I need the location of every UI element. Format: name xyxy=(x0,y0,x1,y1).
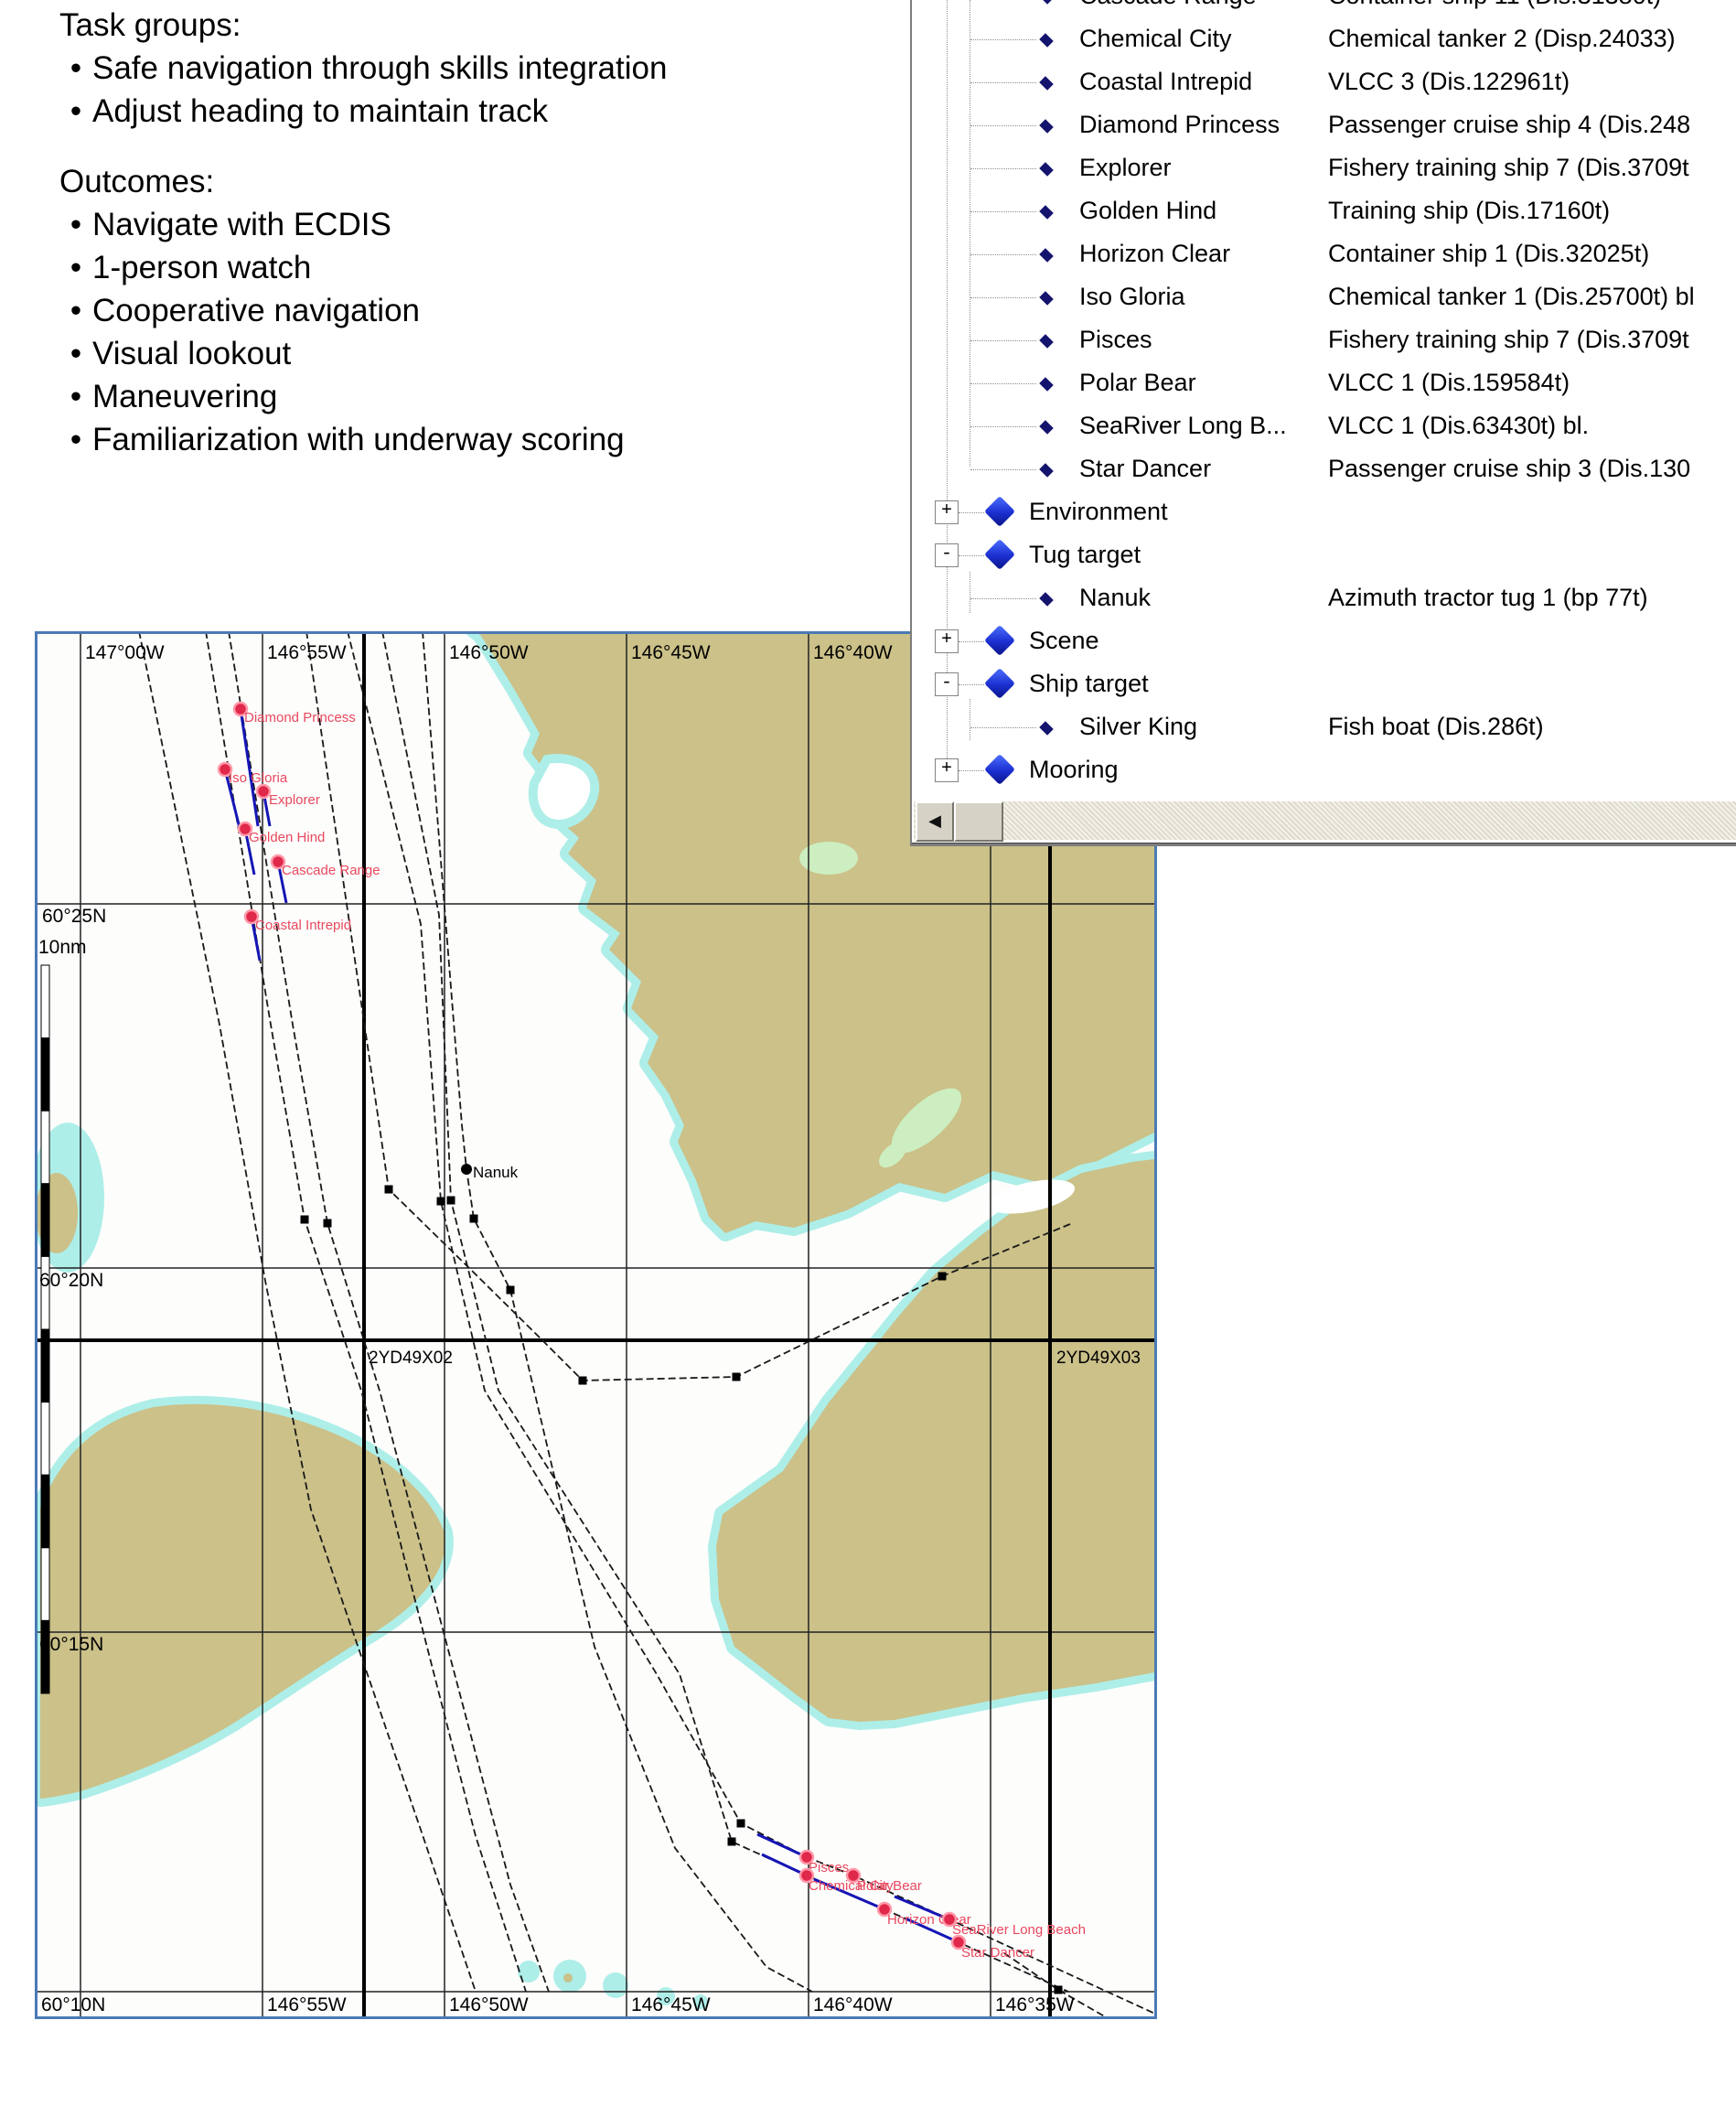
item-bullet-icon xyxy=(1039,420,1054,435)
tree-row-mooring[interactable]: +Mooring xyxy=(912,749,1736,792)
ship-name: SeaRiver Long B... xyxy=(1079,412,1287,440)
waypoint-square[interactable] xyxy=(385,1186,393,1194)
item-bullet-icon xyxy=(1039,119,1054,134)
coordinate-label: 146°50W xyxy=(449,642,529,663)
bullet-dot: • xyxy=(59,47,92,90)
ship-description: Container ship 1 (Dis.32025t) xyxy=(1328,240,1649,268)
coordinate-label: 146°35W xyxy=(995,1994,1075,2015)
coordinate-label: 60°20N xyxy=(39,1270,103,1291)
item-bullet-icon xyxy=(1039,76,1054,91)
waypoint-square[interactable] xyxy=(301,1216,309,1224)
tree-connector-stub xyxy=(959,641,984,642)
slide-canvas: Task groups: •Safe navigation through sk… xyxy=(0,0,1736,2117)
scenario-tree: Cascade RangeContainer ship 11 (Dis.3138… xyxy=(912,0,1736,792)
ship-label-pisces: Pisces xyxy=(809,1860,849,1875)
tree-connector-stub xyxy=(970,598,1036,599)
tree-row-star-dancer[interactable]: Star DancerPassenger cruise ship 3 (Dis.… xyxy=(912,448,1736,491)
bullet-text: 1-person watch xyxy=(92,250,311,285)
ship-name: Cascade Range xyxy=(1079,0,1257,10)
ship-name: Polar Bear xyxy=(1079,369,1196,397)
waypoint-square[interactable] xyxy=(733,1373,741,1381)
bullet-text: Cooperative navigation xyxy=(92,293,420,328)
bullet-dot: • xyxy=(59,375,92,418)
scale-bar-segment xyxy=(41,1256,49,1329)
ship-name: Pisces xyxy=(1079,326,1152,354)
ship-name: Horizon Clear xyxy=(1079,240,1230,268)
scrollbar-thumb[interactable] xyxy=(954,801,1003,842)
tree-connector-stub xyxy=(970,254,1036,255)
ship-marker-explorer[interactable] xyxy=(257,785,270,798)
bullet-item: •Familiarization with underway scoring xyxy=(59,418,901,461)
bullet-text: Navigate with ECDIS xyxy=(92,207,391,242)
coordinate-label: 146°45W xyxy=(631,1994,711,2015)
coordinate-label: 146°40W xyxy=(813,1994,893,2015)
item-bullet-icon xyxy=(1039,592,1054,607)
tug-marker-nanuk[interactable] xyxy=(461,1164,472,1175)
tree-row-explorer[interactable]: ExplorerFishery training ship 7 (Dis.370… xyxy=(912,147,1736,190)
tree-connector-stub xyxy=(970,82,1036,83)
item-bullet-icon xyxy=(1039,162,1054,177)
tree-connector-stub xyxy=(959,684,984,685)
waypoint-square[interactable] xyxy=(447,1197,455,1205)
ship-description: Fishery training ship 7 (Dis.3709t xyxy=(1328,326,1689,354)
shoal-patch xyxy=(603,1972,628,1998)
tree-row-ship-target[interactable]: -Ship target xyxy=(912,663,1736,706)
ship-description: Fish boat (Dis.286t) xyxy=(1328,713,1544,741)
bullet-dot: • xyxy=(59,203,92,246)
item-bullet-icon xyxy=(1039,377,1054,392)
expand-toggle[interactable]: + xyxy=(935,758,959,782)
ship-description: Chemical tanker 1 (Dis.25700t) bl xyxy=(1328,283,1695,311)
ship-name: Star Dancer xyxy=(1079,455,1211,483)
tree-connector-stub xyxy=(970,39,1036,40)
scale-bar-segment xyxy=(41,1184,49,1257)
ship-description: Fishery training ship 7 (Dis.3709t xyxy=(1328,154,1689,182)
coordinate-label: 146°40W xyxy=(813,642,893,663)
tree-connector-stub xyxy=(970,383,1036,384)
category-label: Scene xyxy=(1029,627,1099,655)
shoal-islet xyxy=(563,1973,573,1983)
waypoint-square[interactable] xyxy=(728,1838,736,1846)
coordinate-label: 146°45W xyxy=(631,642,711,663)
scale-bar-segment xyxy=(41,1548,49,1621)
bullet-dot: • xyxy=(59,418,92,461)
ship-description: Chemical tanker 2 (Disp.24033) xyxy=(1328,25,1676,53)
tree-row-nanuk[interactable]: NanukAzimuth tractor tug 1 (bp 77t) xyxy=(912,577,1736,620)
bullet-item: •Adjust heading to maintain track xyxy=(59,90,901,133)
scale-bar-segment xyxy=(41,1329,49,1402)
item-bullet-icon xyxy=(1039,248,1054,263)
tree-connector-stub xyxy=(959,770,984,771)
ship-label-cascade-range: Cascade Range xyxy=(282,863,380,878)
tree-row-tug-target[interactable]: -Tug target xyxy=(912,534,1736,577)
ship-name: Explorer xyxy=(1079,154,1172,182)
item-bullet-icon xyxy=(1039,721,1054,736)
category-diamond-icon xyxy=(984,539,1015,570)
category-label: Mooring xyxy=(1029,756,1119,784)
bay-inlet xyxy=(533,758,595,824)
tree-row-pisces[interactable]: PiscesFishery training ship 7 (Dis.3709t xyxy=(912,319,1736,362)
item-bullet-icon xyxy=(1039,33,1054,48)
tree-row-polar-bear[interactable]: Polar BearVLCC 1 (Dis.159584t) xyxy=(912,362,1736,405)
bullet-text: Familiarization with underway scoring xyxy=(92,422,625,457)
ship-name: Nanuk xyxy=(1079,584,1151,612)
tree-connector-stub xyxy=(970,426,1036,427)
waypoint-square[interactable] xyxy=(437,1198,445,1206)
tug-label: Nanuk xyxy=(473,1164,519,1181)
bullet-text: Adjust heading to maintain track xyxy=(92,93,548,129)
ship-name: Iso Gloria xyxy=(1079,283,1185,311)
ship-label-golden-hind: Golden Hind xyxy=(249,830,325,845)
notes-block: Task groups: •Safe navigation through sk… xyxy=(59,4,901,461)
shoal-patch xyxy=(518,1961,540,1983)
category-diamond-icon xyxy=(984,668,1015,699)
tree-row-golden-hind[interactable]: Golden HindTraining ship (Dis.17160t) xyxy=(912,190,1736,233)
waypoint-square[interactable] xyxy=(938,1273,947,1281)
tree-row-iso-gloria[interactable]: Iso GloriaChemical tanker 1 (Dis.25700t)… xyxy=(912,276,1736,319)
waypoint-square[interactable] xyxy=(470,1215,478,1223)
tree-connector-stub xyxy=(959,555,984,556)
expand-toggle[interactable]: - xyxy=(935,672,959,696)
ship-label-seariver-long-beach: SeaRiver Long Beach xyxy=(952,1922,1086,1938)
expand-toggle[interactable]: + xyxy=(935,500,959,524)
tree-connector-stub xyxy=(959,512,984,513)
bullet-dot: • xyxy=(59,332,92,375)
bullet-item: •1-person watch xyxy=(59,246,901,289)
category-diamond-icon xyxy=(984,754,1015,785)
ship-name: Silver King xyxy=(1079,713,1197,741)
scale-bar-segment xyxy=(41,1620,49,1693)
ship-description: Passenger cruise ship 4 (Dis.248 xyxy=(1328,111,1690,139)
item-bullet-icon xyxy=(1039,205,1054,220)
coordinate-label: 146°50W xyxy=(449,1994,529,2015)
waypoint-square[interactable] xyxy=(737,1820,745,1828)
horizontal-scrollbar[interactable]: ◀ xyxy=(914,801,1736,840)
outcomes-title: Outcomes: xyxy=(59,160,901,203)
ship-label-diamond-princess: Diamond Princess xyxy=(244,710,356,725)
bullet-text: Safe navigation through skills integrati… xyxy=(92,50,667,86)
category-diamond-icon xyxy=(984,496,1015,527)
tree-row-coastal-intrepid[interactable]: Coastal IntrepidVLCC 3 (Dis.122961t) xyxy=(912,61,1736,104)
category-diamond-icon xyxy=(984,625,1015,656)
tree-row-seariver-long-b[interactable]: SeaRiver Long B...VLCC 1 (Dis.63430t) bl… xyxy=(912,405,1736,448)
ship-description: VLCC 1 (Dis.63430t) bl. xyxy=(1328,412,1589,440)
tree-connector-stub xyxy=(970,727,1036,728)
coordinate-label: 10nm xyxy=(38,937,87,958)
tree-row-environment[interactable]: +Environment xyxy=(912,491,1736,534)
ship-label-explorer: Explorer xyxy=(269,792,320,808)
ship-label-iso-gloria: Iso Gloria xyxy=(229,770,288,786)
scale-bar-segment xyxy=(41,1038,49,1112)
ship-name: Diamond Princess xyxy=(1079,111,1280,139)
category-label: Environment xyxy=(1029,498,1168,526)
tree-connector-stub xyxy=(970,340,1036,341)
ship-label-star-dancer: Star Dancer xyxy=(961,1945,1034,1961)
bullet-item: •Maneuvering xyxy=(59,375,901,418)
bullet-item: •Safe navigation through skills integrat… xyxy=(59,47,901,90)
coordinate-label: 146°55W xyxy=(267,642,347,663)
waypoint-square[interactable] xyxy=(579,1377,587,1385)
ship-description: VLCC 1 (Dis.159584t) xyxy=(1328,369,1570,397)
scroll-left-button[interactable]: ◀ xyxy=(916,801,954,842)
category-label: Ship target xyxy=(1029,670,1149,698)
bullet-dot: • xyxy=(59,246,92,289)
tree-row-diamond-princess[interactable]: Diamond PrincessPassenger cruise ship 4 … xyxy=(912,104,1736,147)
tree-row-cascade-range[interactable]: Cascade RangeContainer ship 11 (Dis.3138… xyxy=(912,0,1736,18)
scenario-tree-panel: Cascade RangeContainer ship 11 (Dis.3138… xyxy=(910,0,1736,846)
waypoint-square[interactable] xyxy=(324,1220,332,1228)
scale-bar-segment xyxy=(41,1402,49,1476)
bullet-dot: • xyxy=(59,90,92,133)
waypoint-square[interactable] xyxy=(507,1286,515,1295)
ship-name: Chemical City xyxy=(1079,25,1232,53)
scale-bar-segment xyxy=(41,1475,49,1548)
ship-name: Coastal Intrepid xyxy=(1079,68,1252,96)
expand-toggle[interactable]: + xyxy=(935,629,959,653)
coordinate-label: 2YD49X02 xyxy=(369,1349,453,1368)
coordinate-label: 60°25N xyxy=(42,906,106,927)
tree-row-horizon-clear[interactable]: Horizon ClearContainer ship 1 (Dis.32025… xyxy=(912,233,1736,276)
scale-bar-segment xyxy=(41,965,49,1038)
bullet-text: Visual lookout xyxy=(92,336,291,371)
task-groups-title: Task groups: xyxy=(59,4,901,47)
bullet-item: •Cooperative navigation xyxy=(59,289,901,332)
bullet-item: •Visual lookout xyxy=(59,332,901,375)
tree-connector-stub xyxy=(970,469,1036,470)
bullet-item: •Navigate with ECDIS xyxy=(59,203,901,246)
ship-description: Container ship 11 (Dis.31380t) xyxy=(1328,0,1661,10)
item-bullet-icon xyxy=(1039,0,1054,5)
ship-description: Azimuth tractor tug 1 (bp 77t) xyxy=(1328,584,1648,612)
ship-description: Passenger cruise ship 3 (Dis.130 xyxy=(1328,455,1690,483)
tree-row-scene[interactable]: +Scene xyxy=(912,620,1736,663)
scale-bar-segment xyxy=(41,1111,49,1184)
coordinate-label: 147°00W xyxy=(85,642,165,663)
bullet-text: Maneuvering xyxy=(92,379,277,414)
ship-description: Training ship (Dis.17160t) xyxy=(1328,197,1610,225)
item-bullet-icon xyxy=(1039,291,1054,306)
tree-connector-stub xyxy=(970,211,1036,212)
tree-connector-stub xyxy=(970,168,1036,169)
waypoint-square[interactable] xyxy=(1055,1986,1063,1994)
tree-connector-stub xyxy=(970,297,1036,298)
ship-label-polar-bear: Polar Bear xyxy=(857,1878,922,1894)
coordinate-label: 60°15N xyxy=(39,1634,103,1655)
coordinate-label: 146°55W xyxy=(267,1994,347,2015)
expand-toggle[interactable]: - xyxy=(935,543,959,567)
item-bullet-icon xyxy=(1039,463,1054,478)
tree-row-chemical-city[interactable]: Chemical CityChemical tanker 2 (Disp.240… xyxy=(912,18,1736,61)
coordinate-label: 2YD49X03 xyxy=(1056,1349,1141,1368)
tree-connector-stub xyxy=(970,125,1036,126)
category-label: Tug target xyxy=(1029,541,1141,569)
item-bullet-icon xyxy=(1039,334,1054,349)
ship-label-coastal-intrepid: Coastal Intrepid xyxy=(255,918,351,933)
tree-row-silver-king[interactable]: Silver KingFish boat (Dis.286t) xyxy=(912,706,1736,749)
ship-description: VLCC 3 (Dis.122961t) xyxy=(1328,68,1570,96)
coordinate-label: 60°10N xyxy=(41,1994,105,2015)
bullet-dot: • xyxy=(59,289,92,332)
ship-name: Golden Hind xyxy=(1079,197,1216,225)
